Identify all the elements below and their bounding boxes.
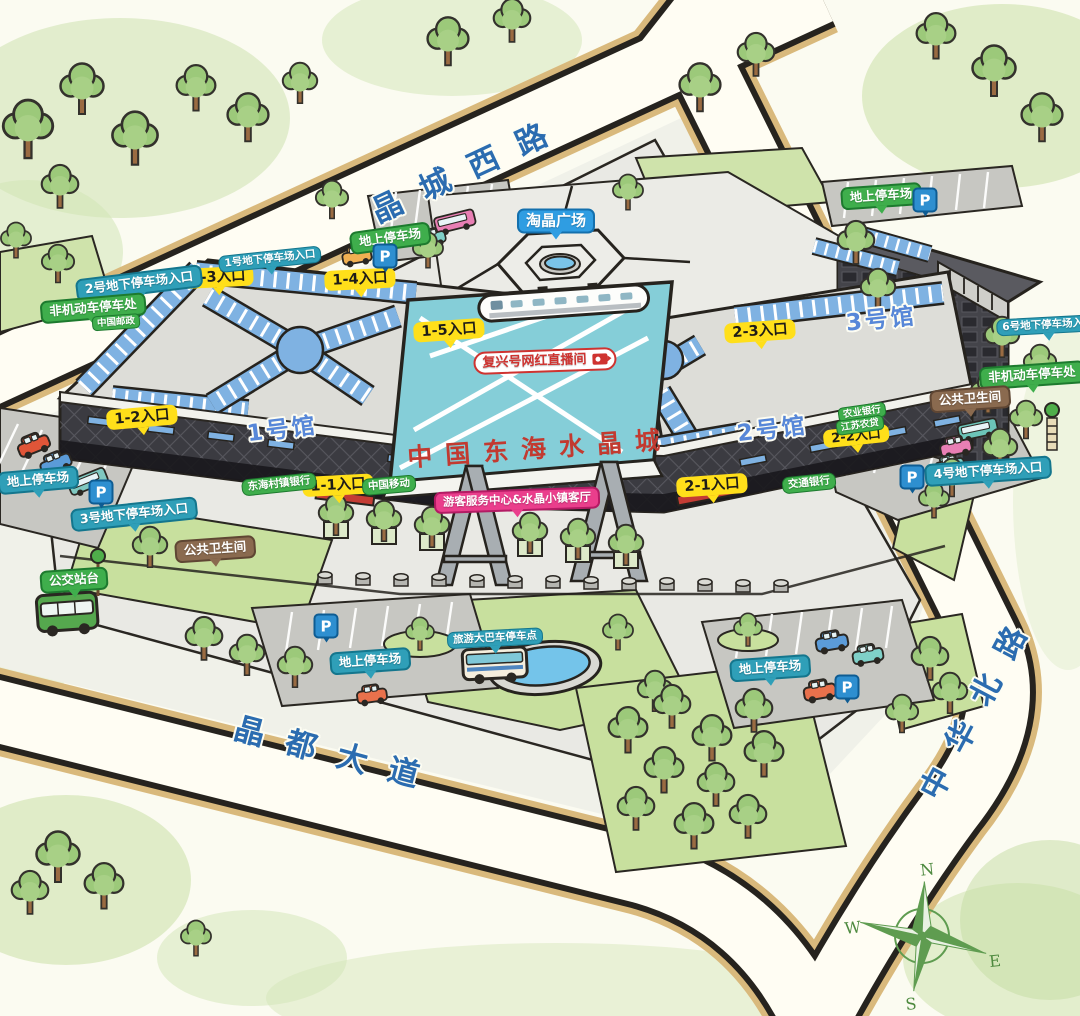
parking-p-icon: P: [900, 465, 925, 490]
compass-e: E: [988, 951, 1002, 971]
compass-w: W: [844, 917, 863, 938]
video-camera-icon: [592, 353, 607, 365]
parking-p-icon: P: [314, 614, 339, 639]
crystal-city-map: N W E S 晶城西路 晶都大道 中华北路 1号馆 2号馆 3号馆 中国东海水…: [0, 0, 1080, 1016]
city-bus: [36, 589, 99, 638]
east-bus-sign: [1045, 403, 1059, 450]
taojing-square-badge: 淘晶广场: [517, 209, 595, 234]
bus-stop-badge: 公交站台: [39, 566, 108, 593]
compass-n: N: [919, 859, 935, 879]
parking-p-icon: P: [373, 244, 398, 269]
parking-p-icon: P: [835, 675, 860, 700]
live-stream-room-label: 复兴号网红直播间: [482, 353, 586, 370]
compass-s: S: [905, 994, 918, 1014]
parking-p-icon: P: [89, 480, 114, 505]
parking-p-icon: P: [913, 188, 938, 213]
